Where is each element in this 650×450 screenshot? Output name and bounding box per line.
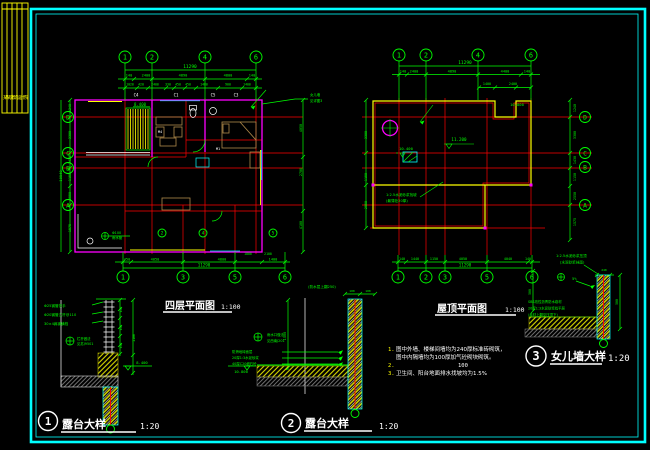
- dim-text: 1575: [68, 224, 72, 232]
- svg-text:5: 5: [233, 274, 237, 282]
- axis-bubble: 3: [177, 271, 189, 283]
- dim-text: 10940: [58, 170, 63, 182]
- axis-bubble: 5: [481, 271, 493, 283]
- detail2-scale: 1:20: [379, 422, 398, 431]
- axis-bubble: 4: [199, 229, 207, 237]
- axis-bubble: 1: [119, 51, 131, 63]
- detail1-scale: 1:20: [140, 422, 159, 431]
- svg-text:3: 3: [443, 274, 447, 282]
- svg-text:1: 1: [397, 52, 401, 60]
- svg-text:3: 3: [181, 274, 185, 282]
- dim-text: 1800: [244, 252, 252, 256]
- dim-text: C1: [174, 93, 179, 98]
- dim-text: 1400: [269, 258, 278, 262]
- dim-text: 4050: [151, 258, 160, 262]
- axis-bubble: 3: [439, 271, 451, 283]
- dim-text: C3: [234, 93, 239, 98]
- plan-title-floor4: 四层平面图: [165, 300, 215, 312]
- note-line-3: 100: [458, 363, 468, 369]
- dim-text: 1400: [483, 82, 491, 86]
- axis-bubble: 2: [146, 51, 158, 63]
- svg-text:2: 2: [150, 54, 154, 62]
- svg-text:1: 1: [121, 274, 125, 282]
- dim-text: 1020: [126, 83, 134, 87]
- dim-text: M4: [158, 130, 162, 134]
- stair: [126, 108, 150, 150]
- dim-text: 10.800: [510, 102, 524, 107]
- dim-text: 11290: [458, 60, 472, 66]
- dim-text: 2550: [364, 201, 368, 209]
- note-line-4: 卫生间、阳台地面排水找坡均为1.5%: [396, 369, 487, 377]
- dim-text: 4040: [504, 257, 512, 261]
- dim-text: 20厚1:3水泥砂浆找平层: [528, 306, 566, 311]
- dim-text: 500: [615, 299, 619, 305]
- dim-text: 3300: [364, 131, 368, 139]
- dim-text: 3300: [573, 131, 577, 139]
- detail-terrace-1: 1 露台大样 1:20: [39, 298, 160, 433]
- dim-text: 140: [399, 257, 405, 261]
- axis-bubble: 4: [199, 51, 211, 63]
- dim-text: 雨水口做法: [267, 332, 285, 337]
- axis-bubble: 5: [269, 229, 277, 237]
- dim-text: 3300: [68, 131, 72, 139]
- detail3-title: 女儿墙大样: [551, 349, 606, 363]
- dim-text: 4890: [179, 74, 188, 78]
- dim-text: 见详图3: [310, 98, 322, 103]
- detail2-title: 露台大样: [305, 416, 349, 430]
- svg-text:2: 2: [161, 231, 164, 237]
- svg-text:4: 4: [476, 52, 480, 60]
- dim-text: 1430: [573, 156, 577, 164]
- dim-text: 2550: [68, 192, 72, 200]
- note-line-2: 图中内隔墙均为100厚加气砼砌块砌筑。: [396, 353, 495, 361]
- svg-text:2: 2: [424, 274, 428, 282]
- general-notes: 1. 图中外墙、楼梯间墙均为240厚标准砖砌筑， 图中内隔墙均为100厚加气砼砌…: [388, 345, 506, 377]
- dim-text: 2100: [264, 252, 272, 256]
- dim-text: C4: [134, 93, 139, 98]
- dim-text: (水泥砂浆抹面): [560, 260, 585, 265]
- dim-text: 1575: [573, 218, 577, 226]
- note-marker-1: 1.: [388, 347, 395, 353]
- svg-text:B: B: [583, 164, 587, 171]
- dim-text: 500: [528, 289, 532, 295]
- dim-text: 140: [525, 257, 531, 261]
- dim-text: 见苏J9501: [77, 341, 93, 346]
- dim-text: 防滑地砖面层: [232, 349, 253, 354]
- dim-text: 140: [126, 74, 133, 78]
- dim-text: 450: [124, 258, 131, 262]
- dim-text: 11290: [459, 263, 472, 268]
- svg-text:4: 4: [203, 54, 207, 62]
- axis-bubble: 6: [525, 49, 537, 61]
- left-title-strip: 某某建筑设计院: [2, 3, 29, 113]
- dim-text: 8.400: [136, 360, 148, 365]
- dim-text: 30×4扁钢横档: [44, 321, 69, 326]
- plan-scale-roof: 1:100: [505, 306, 525, 314]
- dim-text: SBS改性沥青防水卷材: [528, 299, 562, 304]
- svg-text:C: C: [583, 150, 587, 157]
- dim-text: 11.200: [451, 137, 467, 142]
- dim-text: 450: [185, 83, 191, 87]
- dim-text: 1430: [68, 156, 72, 164]
- dim-text: 4400: [501, 70, 510, 74]
- dim-text: 900: [225, 83, 231, 87]
- dim-text: 1240: [68, 104, 72, 112]
- dim-text: (防水层上翻250): [308, 284, 336, 289]
- dim-text: 4050: [459, 257, 467, 261]
- dim-text: 1150: [573, 173, 577, 181]
- dim-text: 40厚C20细石砼: [232, 361, 257, 366]
- svg-text:6: 6: [529, 52, 533, 60]
- dim-text: 10.400: [399, 146, 413, 151]
- dim-text: 2700: [299, 168, 303, 176]
- svg-text:A: A: [66, 202, 70, 209]
- dim-text: 4800: [224, 74, 233, 78]
- dim-text: 420: [138, 83, 144, 87]
- detail3-scale: 1:20: [608, 354, 630, 364]
- detail1-title: 露台大样: [62, 417, 106, 431]
- note-line-1: 图中外墙、楼梯间墙均为240厚标准砖砌筑，: [396, 345, 506, 353]
- plan-title-roof: 屋顶平面图: [437, 303, 487, 315]
- axis-bubble: 2: [158, 229, 166, 237]
- dim-text: Φ25钢管扶手: [44, 303, 66, 308]
- axis-bubble: 6: [279, 271, 291, 283]
- dim-text: 110: [119, 325, 123, 330]
- dim-text: 240: [601, 268, 607, 272]
- dim-text: 雨水管: [112, 235, 123, 240]
- dim-text: 20厚1:3水泥砂浆: [232, 355, 259, 360]
- dim-text: 100: [349, 289, 355, 293]
- dim-text: 11290: [198, 263, 211, 268]
- dim-text: 1150: [430, 257, 438, 261]
- svg-text:D: D: [66, 114, 70, 121]
- dim-text: 140: [400, 70, 407, 74]
- plan-scale-floor4: 1:100: [221, 303, 241, 311]
- svg-text:6: 6: [530, 274, 534, 282]
- dim-text: 1:2.5水泥砂浆找坡: [386, 192, 417, 197]
- axis-bubble: 1: [117, 271, 129, 283]
- svg-text:B: B: [66, 165, 70, 172]
- axis-bubble: 2: [420, 49, 432, 61]
- dim-text: 1:2.5水泥砂浆压顶: [556, 253, 587, 258]
- note-marker-2: 2.: [388, 363, 395, 369]
- bath-fixtures: [78, 106, 217, 249]
- axis-bubble: 6: [526, 271, 538, 283]
- dim-text: 5%: [572, 276, 577, 281]
- dim-text: 2400: [410, 70, 419, 74]
- dim-text: 女儿墙: [310, 92, 321, 97]
- dim-text: C5: [211, 93, 216, 98]
- svg-text:D: D: [583, 114, 587, 121]
- dim-text: 1150: [68, 173, 72, 181]
- dim-text: 1400: [243, 83, 251, 87]
- svg-text:4: 4: [202, 231, 205, 237]
- svg-text:A: A: [583, 202, 587, 209]
- axis-bubble: 6: [250, 51, 262, 63]
- dim-text: 110: [119, 343, 123, 348]
- dim-text: M1: [216, 147, 220, 151]
- strip-label: 某某建筑设计院: [3, 94, 29, 101]
- axis-bubble: B: [580, 162, 591, 173]
- note-marker-3: 3.: [388, 371, 395, 377]
- dim-text: 450: [175, 83, 181, 87]
- dim-text: 140: [524, 70, 531, 74]
- dim-text: Φ20钢管立杆@110: [44, 312, 77, 317]
- dim-text: 4050: [299, 124, 303, 132]
- axis-bubble: 2: [420, 271, 432, 283]
- dim-text: 10.800: [234, 369, 248, 374]
- dim-text: 140: [249, 74, 256, 78]
- dim-text: 1480: [200, 83, 208, 87]
- dim-text: (最薄处20厚): [386, 198, 408, 203]
- axis-bubble: 5: [229, 271, 241, 283]
- detail1-num: 1: [45, 415, 52, 428]
- dim-text: 1440: [411, 257, 419, 261]
- dim-text: 2400: [509, 82, 517, 86]
- dim-text: Φ100: [112, 231, 121, 235]
- svg-text:6: 6: [283, 274, 287, 282]
- cad-canvas: 某某建筑设计院: [0, 0, 650, 450]
- cad-drawing-sheet: 某某建筑设计院: [0, 0, 650, 450]
- dim-text: 2400: [142, 74, 151, 78]
- dim-text: 4800: [218, 258, 227, 262]
- dim-text: 8.400: [134, 102, 147, 107]
- furniture: [156, 117, 260, 210]
- svg-text:1: 1: [396, 274, 400, 282]
- axis-bubble: 4: [472, 49, 484, 61]
- dim-text: 见西南J201: [267, 338, 285, 343]
- dim-text: 330: [165, 83, 171, 87]
- dim-text: 2550: [573, 192, 577, 200]
- dim-text: 2400: [151, 83, 159, 87]
- svg-text:5: 5: [485, 274, 489, 282]
- dim-text: 4890: [448, 70, 457, 74]
- dim-text: (卷材上翻至压顶下): [528, 312, 558, 317]
- svg-text:5: 5: [272, 231, 275, 237]
- dim-text: 110: [119, 307, 123, 312]
- dim-text: 4100: [299, 221, 303, 229]
- svg-text:1: 1: [123, 54, 127, 62]
- svg-text:2: 2: [424, 52, 428, 60]
- dim-text: 11290: [183, 64, 197, 70]
- detail3-num: 3: [532, 349, 539, 363]
- dim-text: 栏杆做法: [77, 336, 91, 341]
- dim-text: 100: [365, 289, 371, 293]
- detail2-num: 2: [288, 417, 295, 430]
- dim-text: 1240: [573, 104, 577, 112]
- dim-text: 1150: [364, 173, 368, 181]
- svg-text:6: 6: [254, 54, 258, 62]
- axis-bubble: 1: [393, 49, 405, 61]
- dim-text: 1100: [132, 334, 136, 342]
- axis-bubble: 1: [392, 271, 404, 283]
